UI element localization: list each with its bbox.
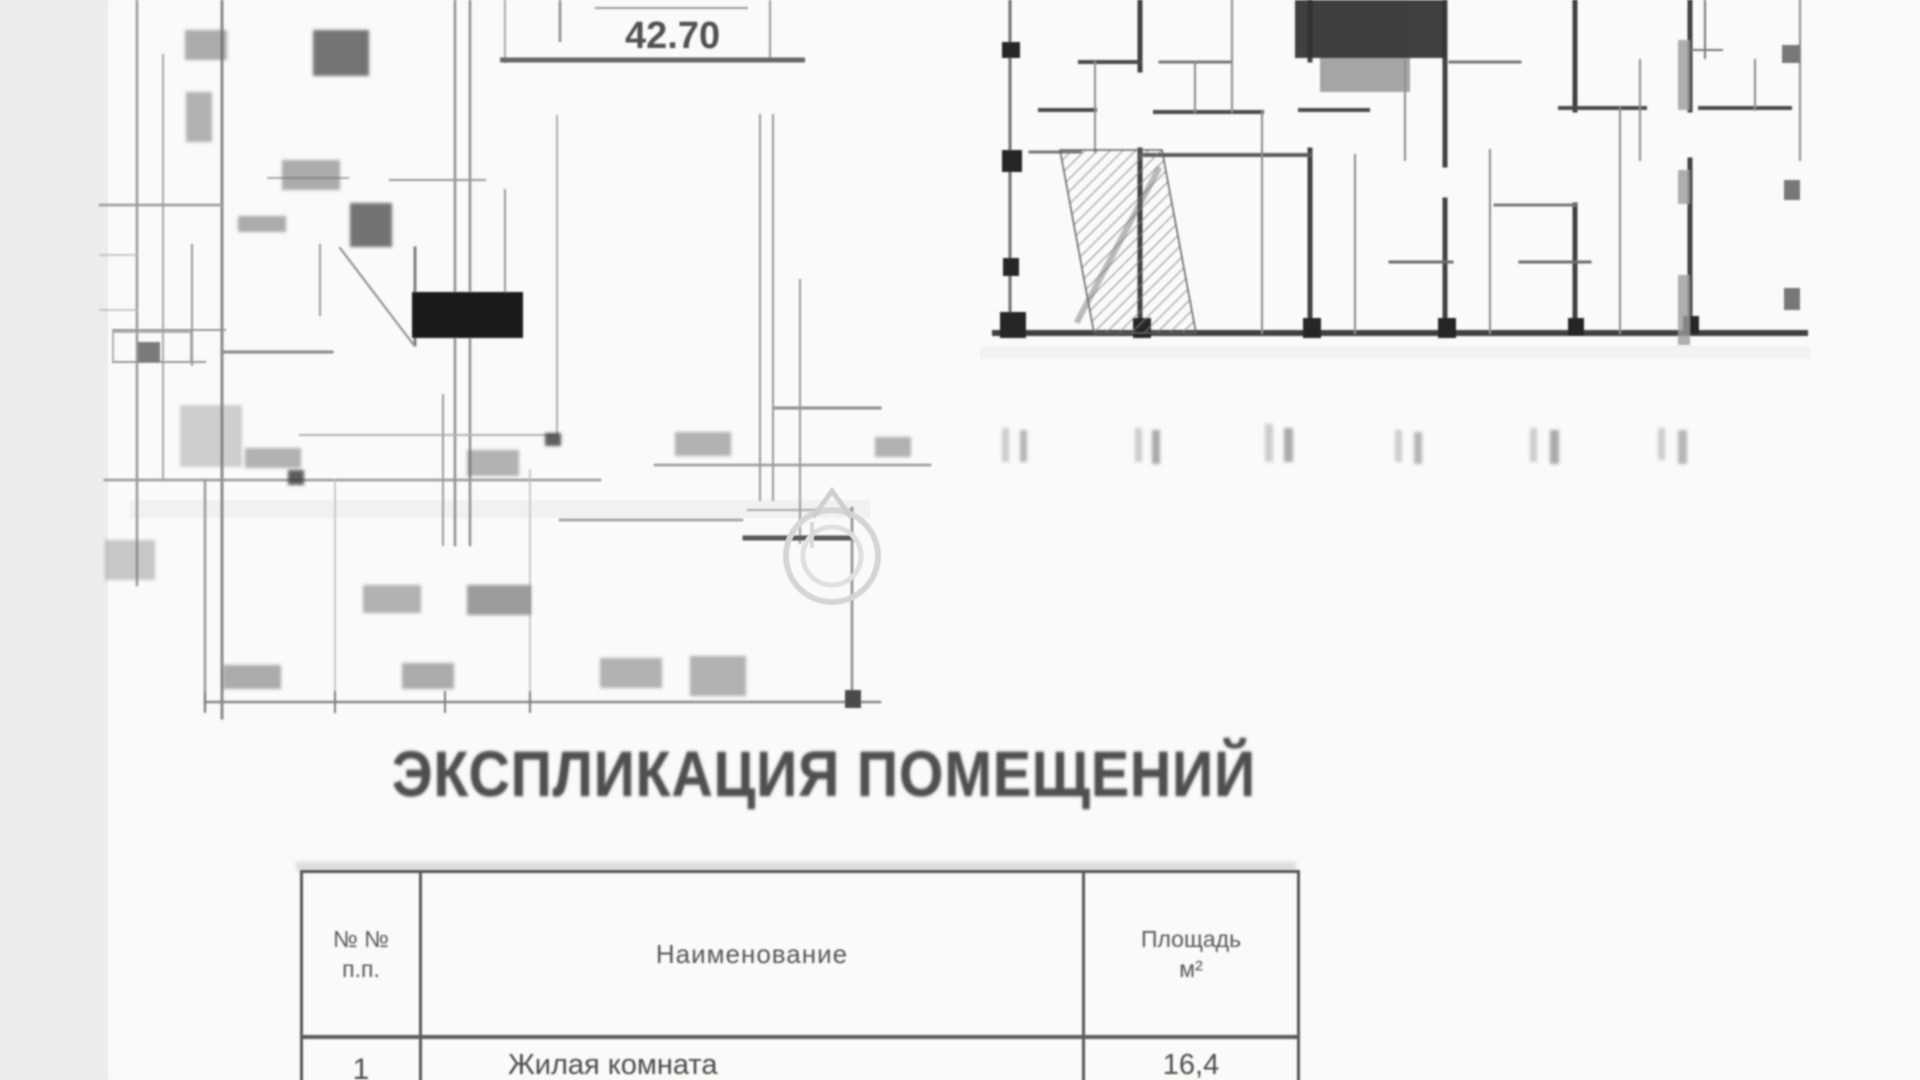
dimension-smudges-keyplan — [1002, 424, 1687, 464]
row-cell-area: 16,4 — [1085, 1039, 1297, 1080]
scan-layer: 42.70 — [0, 0, 1920, 1080]
header-cell-name: Наименование — [422, 873, 1085, 1035]
area-value-box: 42.70 — [500, 0, 805, 60]
drawing-title: ЭКСПЛИКАЦИЯ ПОМЕЩЕНИЙ — [392, 738, 1112, 841]
header-cell-area: Площадь м² — [1085, 873, 1297, 1035]
header-area-line1: Площадь — [1141, 924, 1241, 954]
explication-table: № № п.п. Наименование Площадь м² 1 Жилая… — [300, 870, 1300, 1080]
right-edge-marks — [1678, 0, 1800, 345]
header-number-line2: п.п. — [342, 954, 380, 984]
row-cell-number: 1 — [303, 1039, 422, 1080]
hatch-area — [1060, 150, 1196, 333]
filled-wall-element — [412, 292, 523, 338]
key-plan-building — [995, 0, 1805, 345]
row-cell-name: Жилая комната — [422, 1039, 1085, 1080]
header-name-label: Наименование — [656, 939, 848, 970]
table-row: 1 Жилая комната 16,4 — [303, 1039, 1297, 1080]
area-value-text: 42.70 — [625, 15, 720, 57]
table-header-row: № № п.п. Наименование Площадь м² — [303, 873, 1297, 1039]
scanned-drawing-page: 42.70 — [0, 0, 1920, 1080]
header-number-line1: № № — [333, 924, 389, 954]
header-cell-number: № № п.п. — [303, 873, 422, 1035]
header-area-line2: м² — [1179, 954, 1202, 984]
dimension-smudges-left — [105, 30, 911, 696]
